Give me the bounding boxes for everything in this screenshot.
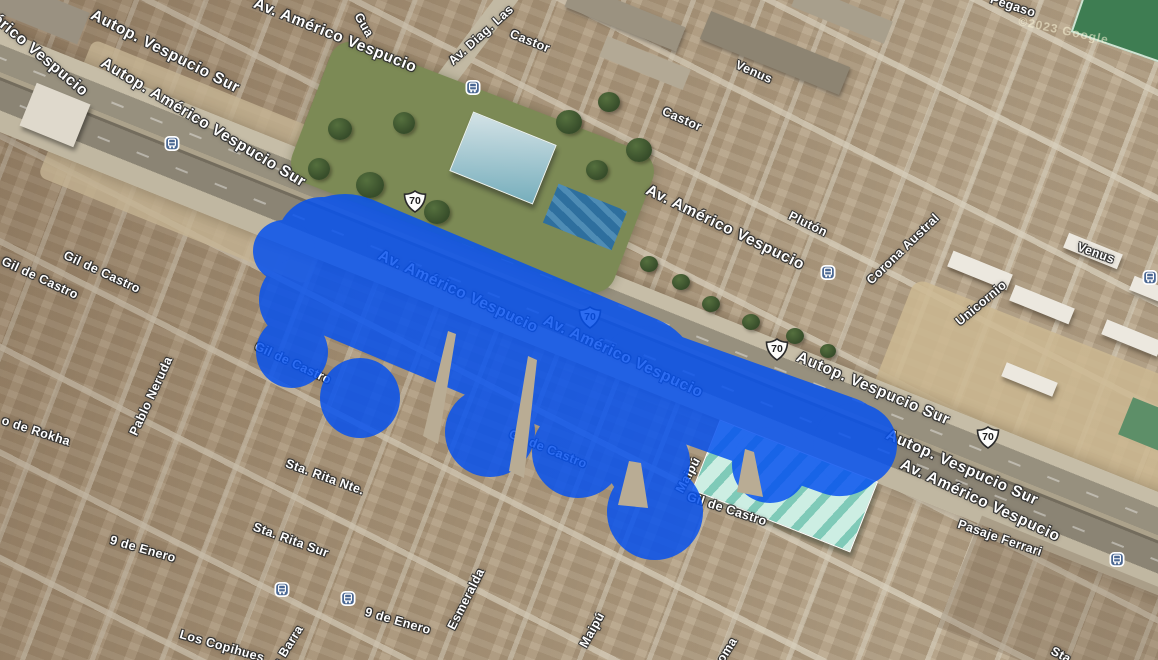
selection-overlay[interactable] xyxy=(0,0,1158,660)
selection-region[interactable] xyxy=(252,172,904,560)
satellite-map[interactable]: Américo VespucioAutop. Vespucio SurAutop… xyxy=(0,0,1158,660)
